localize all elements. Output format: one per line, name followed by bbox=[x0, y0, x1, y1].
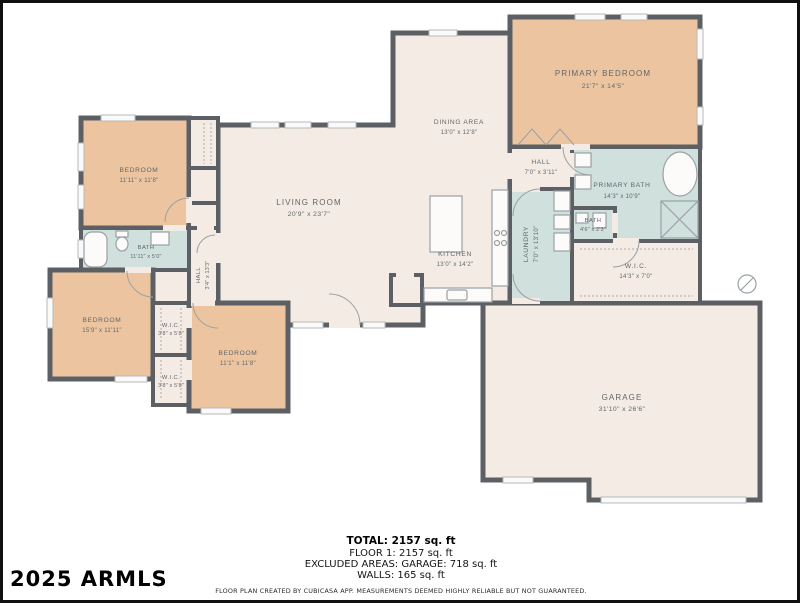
door-gap-primary-bedroom bbox=[561, 144, 590, 150]
pantry-closet bbox=[391, 272, 422, 305]
laundry-label: LAUNDRY bbox=[523, 226, 530, 262]
dining-label: DINING AREA bbox=[434, 119, 484, 126]
room-bedroom-sw bbox=[50, 270, 153, 379]
dining-dims: 13'0" x 12'8" bbox=[441, 130, 478, 136]
hall-vertical-label: HALL bbox=[196, 267, 202, 283]
hall-upper-floor bbox=[510, 147, 572, 189]
sink-fixture bbox=[575, 175, 591, 189]
hall-landing bbox=[153, 270, 189, 303]
window bbox=[115, 376, 147, 382]
window bbox=[293, 322, 323, 328]
door-gap-wic-b bbox=[186, 360, 192, 380]
bedroom-s-label: BEDROOM bbox=[219, 350, 258, 357]
primary-bath-label: PRIMARY BATH bbox=[593, 182, 650, 189]
primary-bedroom-floor bbox=[510, 17, 700, 147]
bath-small-label: BATH bbox=[585, 218, 602, 224]
door-gap-wic-primary bbox=[613, 238, 639, 244]
closet-strip-floor bbox=[189, 118, 218, 228]
window bbox=[285, 122, 311, 128]
window bbox=[575, 14, 605, 20]
window bbox=[78, 143, 84, 171]
bedroom-nw-label: BEDROOM bbox=[120, 167, 159, 174]
door-gap-hall-living bbox=[215, 233, 221, 263]
summary-excluded: EXCLUDED AREAS: GARAGE: 718 sq. ft bbox=[305, 559, 497, 570]
garage-dims: 31'10" x 26'6" bbox=[599, 406, 646, 413]
hall-upper-dims: 7'0" x 3'11" bbox=[525, 170, 558, 176]
bedroom-nw-dims: 11'11" x 11'8" bbox=[119, 178, 158, 184]
toilet-fixture bbox=[116, 237, 128, 251]
room-hall-upper bbox=[510, 147, 572, 189]
bathtub-fixture bbox=[84, 232, 107, 267]
summary-walls: WALLS: 165 sq. ft bbox=[357, 570, 445, 581]
primary-bath-dims: 14'3" x 10'9" bbox=[604, 194, 641, 200]
living-dims: 20'9" x 23'7" bbox=[288, 211, 331, 218]
window bbox=[503, 477, 533, 483]
dryer-fixture bbox=[554, 215, 570, 229]
toilet-tank bbox=[116, 231, 128, 237]
hall-vertical-dims: 3'4" x 13'3" bbox=[205, 261, 211, 290]
window bbox=[78, 185, 84, 209]
window bbox=[47, 298, 53, 328]
door-gap-bedroom-s bbox=[191, 300, 215, 306]
summary-floor1: FLOOR 1: 2157 sq. ft bbox=[349, 548, 453, 559]
wic-primary-dims: 14'3" x 7'0" bbox=[619, 274, 652, 280]
room-wic-primary bbox=[572, 241, 700, 303]
door-gap-bath-small bbox=[612, 213, 618, 233]
laundry-dims: 7'0" x 13'10" bbox=[534, 226, 540, 263]
bath-small-dims: 4'6" x 2'3" bbox=[580, 227, 606, 233]
window bbox=[429, 30, 457, 36]
kitchen-dims: 13'0" x 14'2" bbox=[437, 262, 474, 268]
door-gap-hall-dining bbox=[507, 153, 513, 179]
wic-a-floor bbox=[153, 303, 189, 355]
area-summary: TOTAL: 2157 sq. ft FLOOR 1: 2157 sq. ft … bbox=[215, 535, 587, 595]
floor-plan-page: PRIMARY BEDROOM 21'7" x 14'5" HALL 7'0" … bbox=[0, 0, 800, 603]
kitchen-counter bbox=[492, 190, 508, 286]
hall-upper-label: HALL bbox=[531, 159, 550, 166]
room-wic-a bbox=[153, 303, 189, 355]
washer-fixture bbox=[554, 191, 570, 211]
kitchen-label: KITCHEN bbox=[438, 251, 472, 258]
bath-hall-label: BATH bbox=[138, 245, 155, 251]
bedroom-sw-dims: 15'9" x 11'11" bbox=[82, 328, 122, 334]
bedroom-sw-label: BEDROOM bbox=[83, 317, 122, 324]
window bbox=[621, 14, 647, 20]
wic-primary-floor bbox=[572, 241, 700, 303]
summary-total: TOTAL: 2157 sq. ft bbox=[347, 535, 456, 547]
room-primary-bedroom bbox=[510, 17, 700, 147]
door-gap-closet bbox=[197, 225, 214, 231]
pantry-floor bbox=[391, 275, 422, 305]
bedroom-sw-floor bbox=[50, 270, 153, 379]
wic-b-label: W.I.C. bbox=[162, 375, 180, 381]
living-label: LIVING ROOM bbox=[276, 198, 341, 207]
bedroom-s-floor bbox=[189, 303, 288, 411]
armls-watermark: 2025 ARMLS bbox=[10, 567, 168, 591]
open-living-area bbox=[218, 33, 510, 325]
closet-strip bbox=[189, 118, 218, 228]
kitchen-sink bbox=[447, 290, 467, 300]
sink-fixture bbox=[575, 153, 591, 167]
window bbox=[251, 122, 279, 128]
window bbox=[328, 122, 356, 128]
hall-landing-floor bbox=[153, 270, 189, 303]
door-gap-bedroom-nw bbox=[186, 197, 192, 223]
bathtub-fixture bbox=[663, 152, 697, 196]
pantry-door-gap bbox=[396, 272, 414, 277]
wic-primary-label: W.I.C. bbox=[625, 263, 647, 270]
living-dining-kitchen-floor bbox=[218, 33, 510, 325]
window bbox=[201, 408, 231, 414]
primary-bedroom-dims: 21'7" x 14'5" bbox=[582, 83, 625, 90]
room-bedroom-s bbox=[189, 303, 288, 411]
bedroom-s-dims: 11'1" x 11'8" bbox=[220, 361, 256, 367]
door-gap-wic-a bbox=[186, 308, 192, 328]
window bbox=[697, 107, 703, 125]
sink-fixture bbox=[151, 232, 169, 245]
door-gap-bedroom-sw bbox=[125, 267, 151, 273]
bath-hall-dims: 11'11" x 5'0" bbox=[130, 254, 161, 260]
disclaimer-text: FLOOR PLAN CREATED BY CUBICASA APP. MEAS… bbox=[215, 587, 587, 595]
window bbox=[697, 29, 703, 59]
primary-bedroom-label: PRIMARY BEDROOM bbox=[555, 69, 651, 78]
window bbox=[78, 240, 84, 258]
wic-b-dims: 3'8" x 5'8" bbox=[158, 383, 184, 389]
door-gap-front-entry bbox=[329, 322, 360, 328]
wic-a-label: W.I.C. bbox=[162, 323, 180, 329]
north-arrow-needle bbox=[741, 278, 753, 290]
utility-fixture bbox=[554, 233, 570, 251]
garage-label: GARAGE bbox=[602, 393, 643, 402]
garage-door-opening bbox=[601, 497, 746, 503]
kitchen-island bbox=[430, 196, 462, 252]
door-gap-bath-hall bbox=[163, 225, 186, 231]
wic-a-dims: 3'8" x 5'8" bbox=[158, 331, 184, 337]
window bbox=[101, 115, 135, 121]
window bbox=[363, 322, 385, 328]
floor-plan-canvas: PRIMARY BEDROOM 21'7" x 14'5" HALL 7'0" … bbox=[3, 3, 800, 603]
